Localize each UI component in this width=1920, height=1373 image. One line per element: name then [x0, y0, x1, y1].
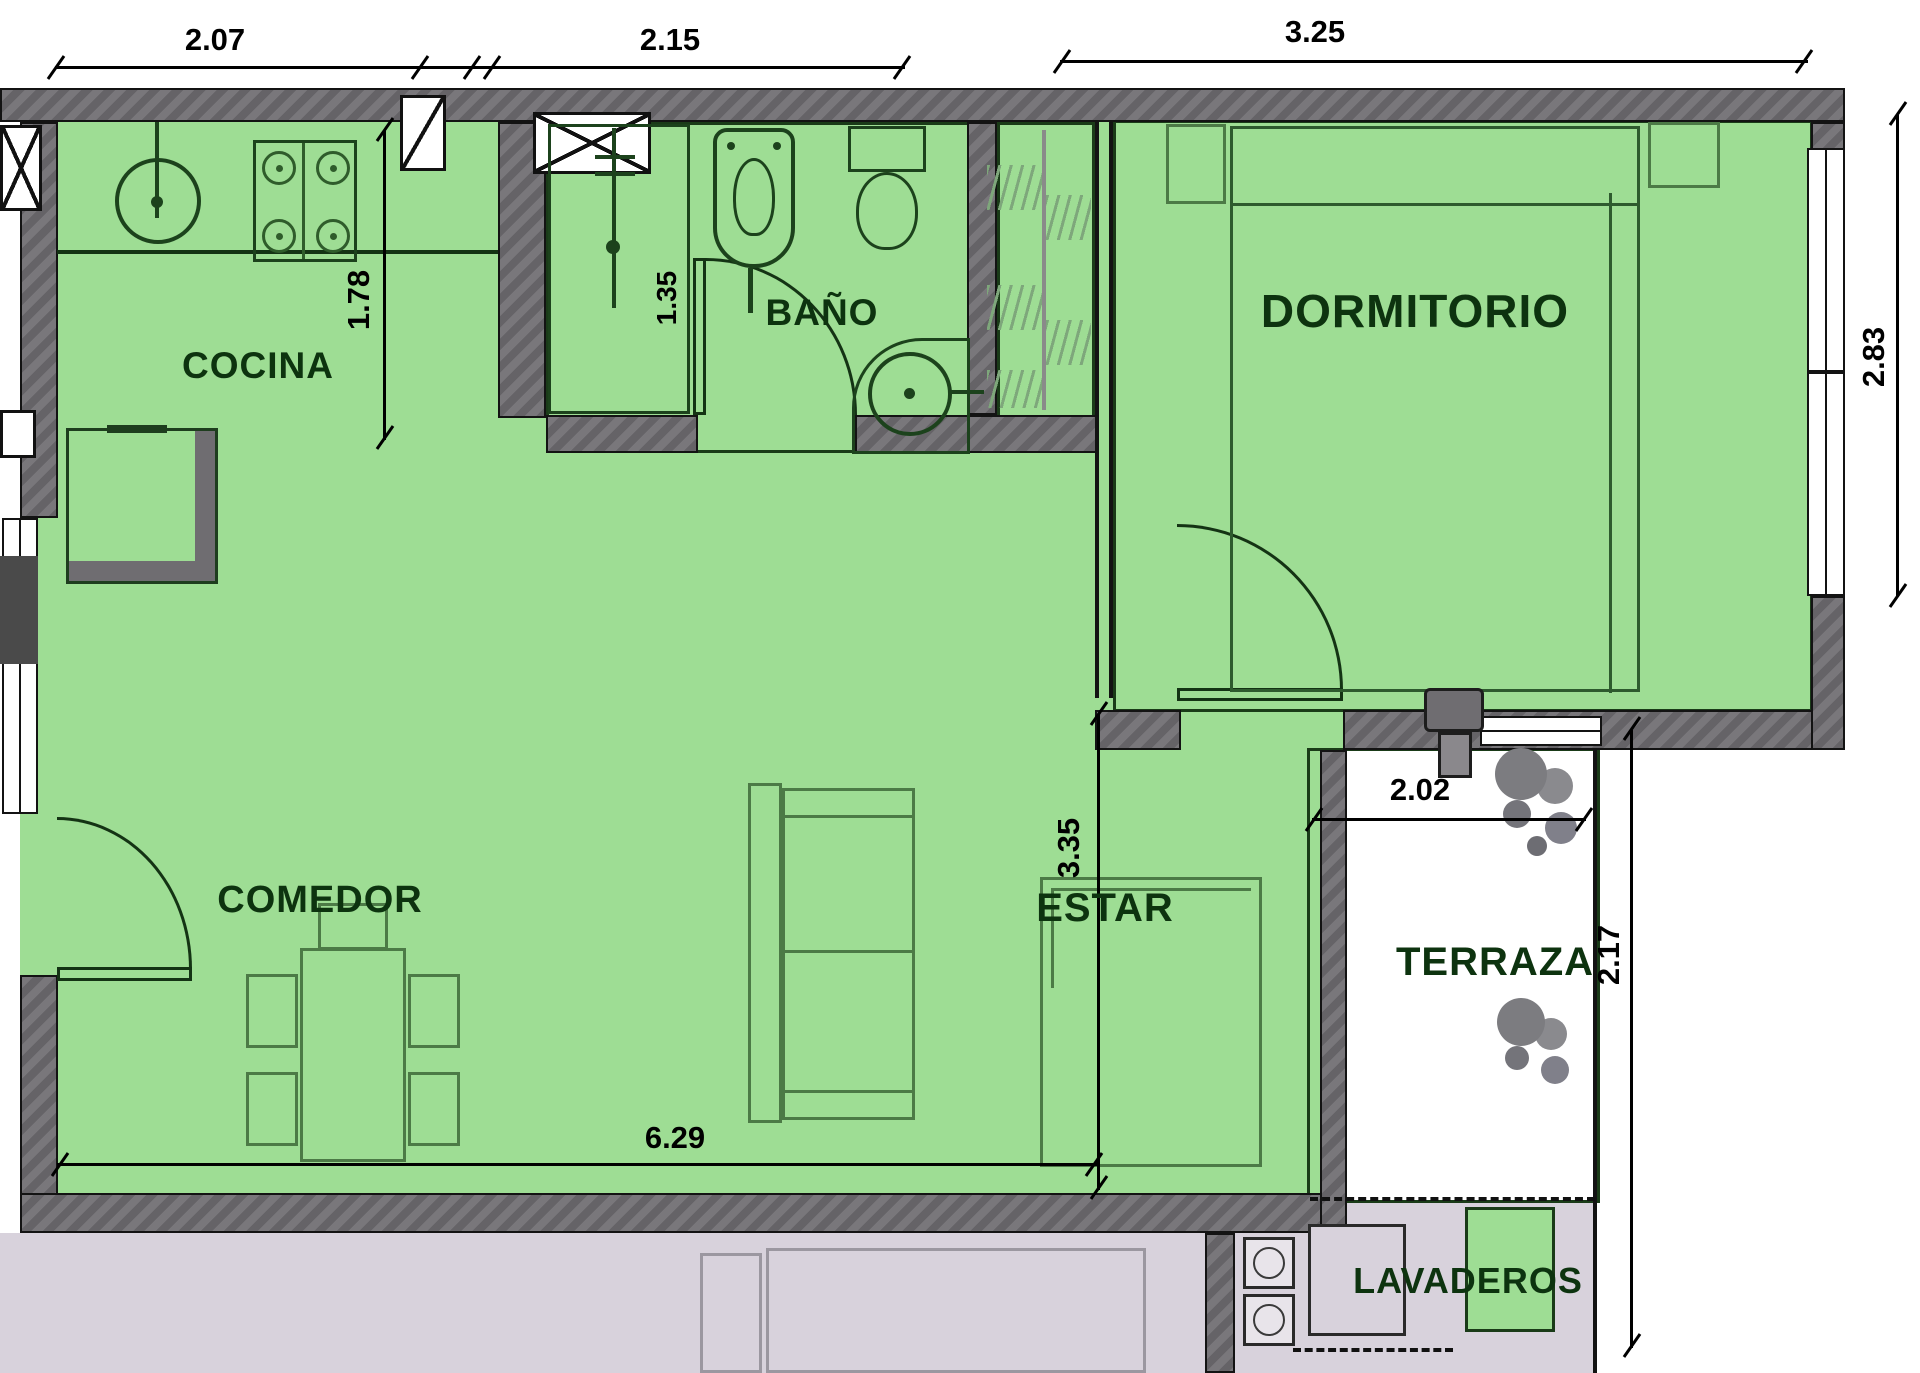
dim-dormitorio-height: 2.83	[1856, 322, 1890, 392]
dining-table	[300, 948, 406, 1162]
room-label-dormitorio: DORMITORIO	[1165, 284, 1665, 338]
wall-bottom	[20, 1193, 1330, 1233]
toilet-icon	[856, 172, 918, 250]
bedroom-window-mullion	[1807, 370, 1845, 374]
shower-bar-1	[595, 155, 635, 159]
room-label-comedor: COMEDOR	[170, 879, 470, 922]
nightstand-left	[1166, 124, 1226, 204]
dim-dormitorio-width: 3.25	[1255, 14, 1375, 50]
wall-bedroom-left	[1095, 122, 1113, 698]
sofa-back	[748, 783, 782, 1123]
dining-chair-right-2	[408, 1072, 460, 1146]
room-label-bano: BAÑO	[722, 292, 922, 334]
sofa-cushion-divider	[782, 950, 915, 953]
dining-chair-right-1	[408, 974, 460, 1048]
dim-line-bano-width	[423, 66, 905, 69]
entry-door-leaf	[57, 967, 192, 981]
dining-chair-left-1	[246, 974, 298, 1048]
room-label-estar: ESTAR	[1005, 886, 1205, 931]
closet-hatch-3	[987, 285, 1042, 330]
washing-machine-icon-1	[1243, 1237, 1295, 1289]
closet-hatch-2	[1046, 195, 1091, 240]
air-conditioner-icon	[1424, 688, 1484, 732]
wall-bath-bottom-left	[546, 415, 698, 453]
closet-hatch-5	[987, 370, 1042, 408]
refrigerator-icon	[66, 428, 218, 584]
kitchen-sink-drain-dot	[151, 196, 163, 208]
wall-laundry-partition	[1205, 1233, 1235, 1373]
double-bed	[1230, 126, 1640, 692]
sofa-armrest-bottom	[782, 1090, 915, 1120]
closet-center-line	[1042, 130, 1046, 410]
dim-line-cocina-depth	[383, 130, 386, 440]
dim-cocina-width: 2.07	[155, 22, 275, 58]
shower-drain-dot	[606, 240, 620, 254]
terrace-laundry-dashed-line	[1310, 1197, 1595, 1201]
dim-line-terraza-width	[1312, 818, 1586, 821]
wall-left-lower	[20, 975, 58, 1197]
neighbor-furniture-2	[766, 1248, 1146, 1373]
shower-bar-2	[595, 172, 635, 176]
plant-icon-top	[1495, 748, 1547, 800]
bidet-icon	[713, 128, 795, 268]
dim-living-width: 6.29	[615, 1120, 735, 1156]
dim-line-terraza-height	[1630, 730, 1633, 1348]
wall-right-top-corner	[1811, 122, 1845, 150]
dim-line-dormitorio-height	[1896, 115, 1899, 597]
wall-right-lower	[1811, 596, 1845, 750]
room-label-cocina: COCINA	[158, 345, 358, 387]
bedroom-terrace-window	[1480, 716, 1602, 746]
plant-icon-bottom	[1497, 998, 1545, 1046]
dim-line-estar-depth	[1097, 714, 1100, 1190]
washbasin-tick	[950, 390, 984, 394]
nightstand-right	[1648, 122, 1720, 188]
dim-line-dormitorio-width	[1060, 60, 1808, 63]
vent-shaft-icon	[0, 125, 42, 211]
floor-plan-canvas: 2.07 2.15 3.25 2.83 2.17 1.78 1.35 3.35 …	[0, 0, 1920, 1373]
dim-cocina-depth: 1.78	[341, 265, 375, 335]
wall-bedroom-bottom-left	[1095, 710, 1181, 750]
neighbor-furniture-1	[700, 1253, 762, 1373]
wall-top	[0, 88, 1845, 122]
dim-terraza-width: 2.02	[1360, 772, 1480, 808]
sofa-armrest-top	[782, 788, 915, 818]
closet-hatch-1	[987, 165, 1042, 210]
stove-icon	[253, 140, 357, 262]
closet-hatch-4	[1046, 320, 1091, 365]
room-label-lavaderos: LAVADEROS	[1318, 1260, 1618, 1302]
neighbor-fixture-left-2	[0, 556, 38, 664]
dim-bano-depth: 1.35	[651, 263, 685, 333]
dim-bano-width: 2.15	[610, 22, 730, 58]
washing-machine-icon-2	[1243, 1294, 1295, 1346]
laundry-bottom-dashed-line	[1293, 1348, 1453, 1352]
kitchen-vent-shaft-icon	[400, 95, 446, 171]
washbasin-dot	[904, 388, 915, 399]
sofa-seat	[782, 788, 915, 1120]
dining-chair-left-2	[246, 1072, 298, 1146]
neighbor-fixture-left-1	[0, 410, 36, 458]
dim-estar-depth: 3.35	[1051, 813, 1085, 883]
room-label-terraza: TERRAZA	[1345, 940, 1645, 985]
dim-line-cocina-width	[55, 66, 423, 69]
toilet-tank	[848, 126, 926, 172]
bath-door-leaf	[693, 258, 706, 415]
dim-line-living-width	[57, 1163, 1097, 1166]
wall-terrace-left	[1320, 750, 1347, 1233]
